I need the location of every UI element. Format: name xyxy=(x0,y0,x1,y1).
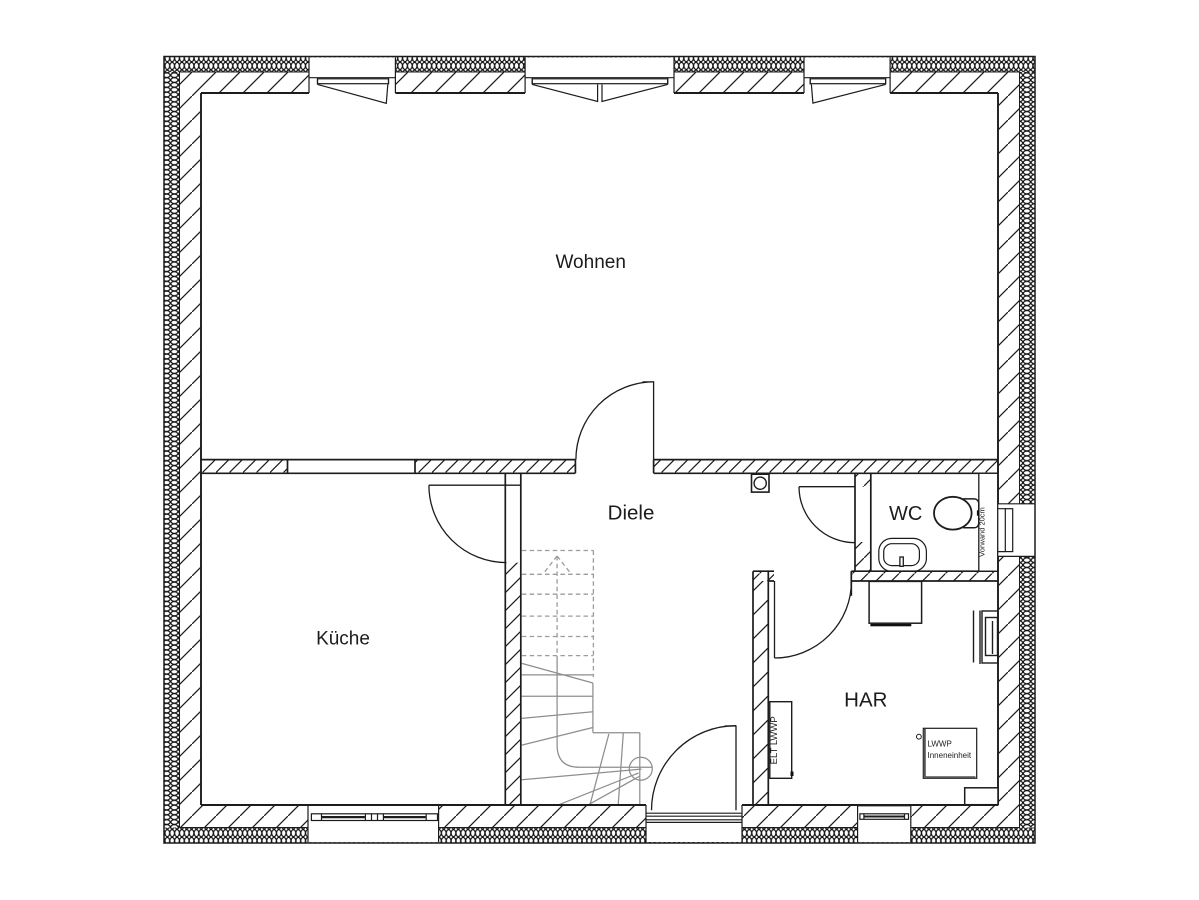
svg-text:LWWP: LWWP xyxy=(928,740,952,749)
svg-text:Diele: Diele xyxy=(608,502,655,525)
svg-text:Inneneinheit: Inneneinheit xyxy=(928,751,972,760)
svg-text:Küche: Küche xyxy=(316,628,370,649)
svg-text:Vorwand 20cm: Vorwand 20cm xyxy=(978,507,987,557)
svg-text:HAR: HAR xyxy=(844,689,887,712)
svg-text:WC: WC xyxy=(889,503,922,525)
svg-text:Wohnen: Wohnen xyxy=(555,252,625,273)
svg-text:ELT LWWP: ELT LWWP xyxy=(769,716,780,764)
